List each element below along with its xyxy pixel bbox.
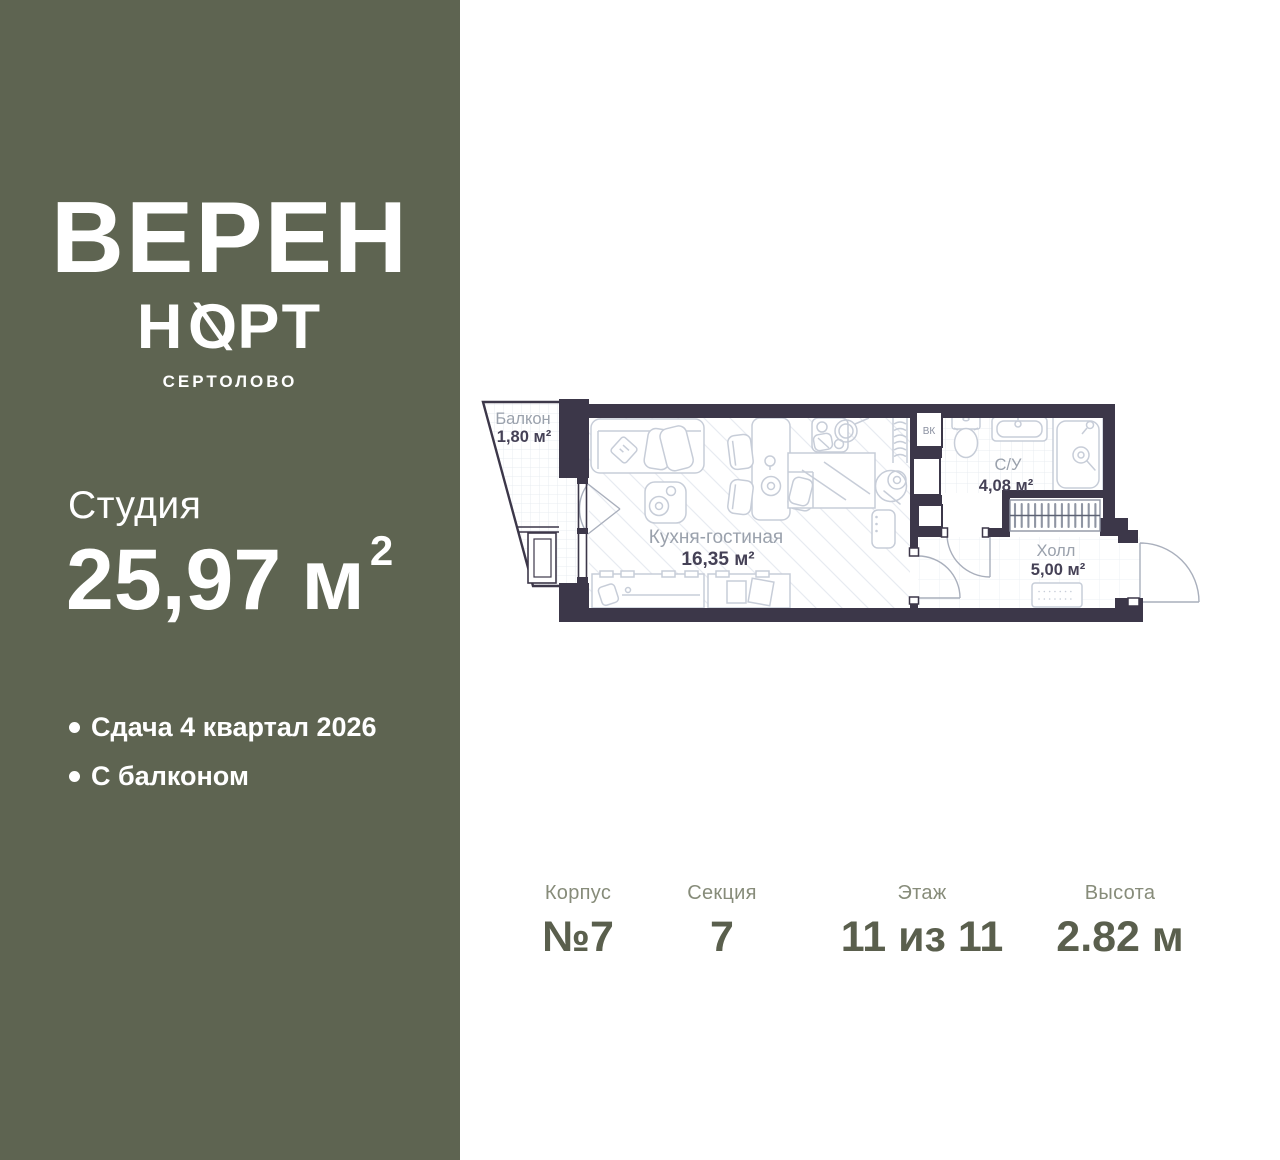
floor-plan: Балкон 1,80 м² Кухня-гостиная 16,35 м² С…: [0, 0, 1280, 1160]
tv-cabinet: [708, 571, 790, 608]
room-name-balcony: Балкон: [495, 410, 550, 428]
room-area-hall: 5,00 м²: [1031, 561, 1086, 579]
desk: [592, 571, 704, 608]
room-name-kitchen: Кухня-гостиная: [649, 527, 783, 548]
side-unit: [645, 482, 686, 523]
doormat: [1032, 583, 1082, 607]
room-name-hall: Холл: [1037, 542, 1076, 560]
room-name-bathroom: С/У: [995, 456, 1023, 474]
mini-fridge: [872, 510, 895, 548]
chair: [727, 479, 754, 516]
hob-and-sink: [812, 418, 848, 452]
chair: [727, 434, 754, 471]
room-area-balcony: 1,80 м²: [497, 428, 552, 446]
shaft-label: ВК: [923, 426, 936, 437]
sofa: [591, 419, 704, 473]
hall-closet: [1010, 500, 1100, 531]
shower: [1053, 417, 1103, 492]
kitchen-counter: [788, 453, 875, 508]
room-area-kitchen: 16,35 м²: [681, 549, 754, 570]
toilet: [952, 416, 980, 458]
dining-table: [752, 418, 790, 520]
room-area-bathroom: 4,08 м²: [979, 477, 1034, 495]
entry-door: [1130, 543, 1199, 602]
